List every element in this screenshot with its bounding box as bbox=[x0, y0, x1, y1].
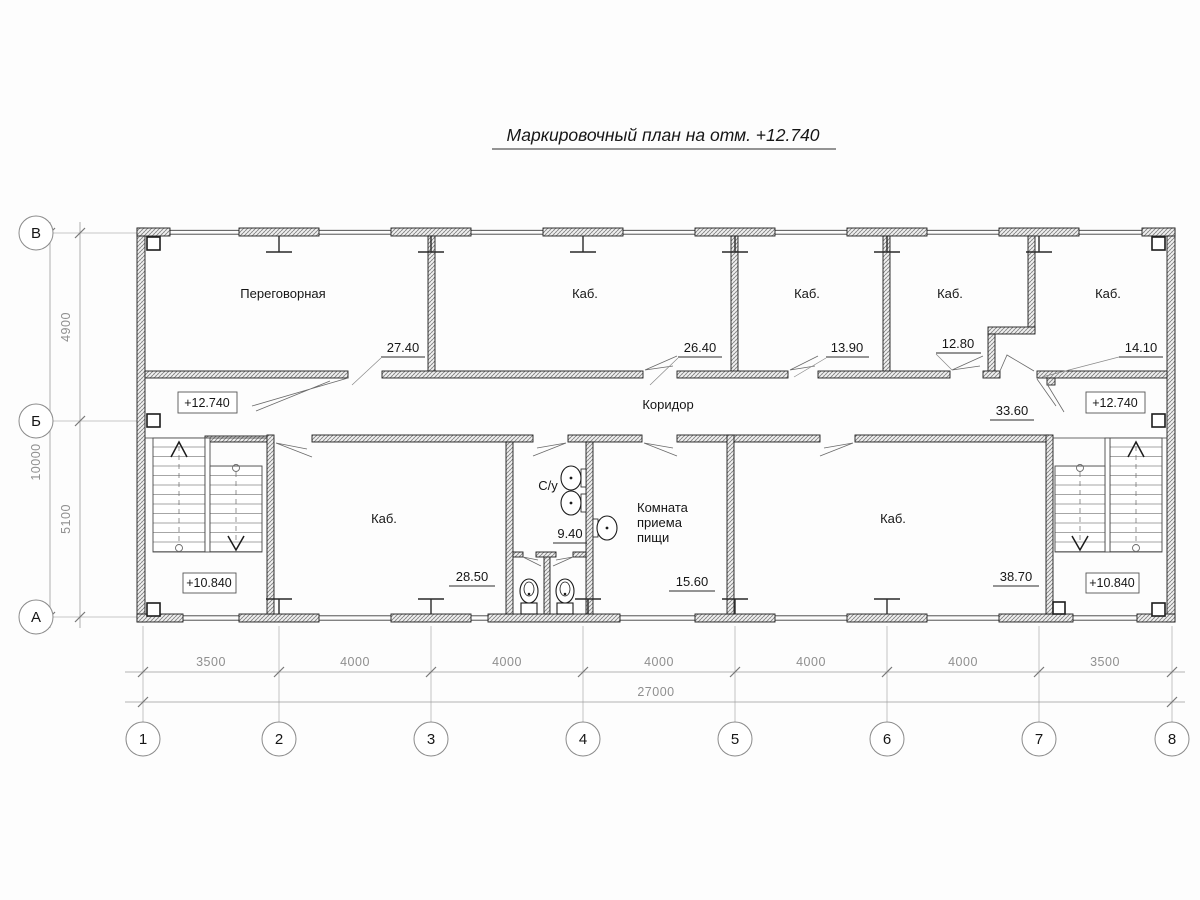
dim-left-lower: 5100 bbox=[59, 504, 73, 534]
sink-icon bbox=[593, 516, 617, 540]
plan-title: Маркировочный план на отм. +12.740 bbox=[506, 125, 819, 145]
room-area-kab-26: 26.40 bbox=[684, 340, 717, 355]
dim-segment-4: 4000 bbox=[796, 655, 826, 669]
dim-segment-2: 4000 bbox=[492, 655, 522, 669]
room-name-kab-12: Каб. bbox=[937, 286, 963, 301]
room-area-kab-12: 12.80 bbox=[942, 336, 975, 351]
axis-col-3: 3 bbox=[427, 731, 435, 748]
room-name-kab-26: Каб. bbox=[572, 286, 598, 301]
room-name-komnata-2: приема bbox=[637, 515, 683, 530]
wall-axis3 bbox=[428, 236, 435, 372]
sink-icon bbox=[561, 491, 586, 515]
wall-axis5 bbox=[731, 236, 738, 372]
room-area-su: 9.40 bbox=[557, 526, 582, 541]
dim-left-upper: 4900 bbox=[59, 312, 73, 342]
dim-total-bottom: 27000 bbox=[637, 685, 674, 699]
axis-col-7: 7 bbox=[1035, 731, 1043, 748]
axis-col-4: 4 bbox=[579, 731, 587, 748]
axis-row-b: Б bbox=[31, 413, 41, 430]
dim-left-total: 10000 bbox=[29, 443, 43, 480]
column-square-icon bbox=[1053, 602, 1065, 614]
room-name-su: С/у bbox=[538, 478, 558, 493]
room-name-kab-14: Каб. bbox=[1095, 286, 1121, 301]
room-area-komnata: 15.60 bbox=[676, 574, 709, 589]
wall-axis6 bbox=[883, 236, 890, 372]
su-wall-right bbox=[586, 442, 593, 614]
dim-segment-3: 4000 bbox=[644, 655, 674, 669]
room-area-peregovornaya: 27.40 bbox=[387, 340, 420, 355]
dim-segment-0: 3500 bbox=[196, 655, 226, 669]
column-square-icon bbox=[1152, 237, 1165, 250]
column-square-icon bbox=[1152, 414, 1165, 427]
level-mark-lower-right: +10.840 bbox=[1089, 576, 1135, 590]
room-name-koridor: Коридор bbox=[642, 397, 693, 412]
room-name-komnata-3: пищи bbox=[637, 530, 669, 545]
room-area-kab-38: 38.70 bbox=[1000, 569, 1033, 584]
exterior-wall-right bbox=[1167, 228, 1175, 622]
corridor-lower-wall bbox=[205, 435, 1048, 442]
axis-col-6: 6 bbox=[883, 731, 891, 748]
room-name-kab-28: Каб. bbox=[371, 511, 397, 526]
stair2-wall bbox=[1046, 435, 1053, 614]
komnata-wall-right bbox=[727, 435, 734, 614]
level-mark-lower-left: +10.840 bbox=[186, 576, 232, 590]
level-mark-upper-right: +12.740 bbox=[1092, 396, 1138, 410]
room-name-kab-38: Каб. bbox=[880, 511, 906, 526]
sink-icon bbox=[561, 466, 586, 490]
stair1-wall bbox=[267, 435, 274, 614]
axis-col-8: 8 bbox=[1168, 731, 1176, 748]
drawing-sheet: Маркировочный план на отм. +12.740 3500 … bbox=[0, 0, 1200, 900]
level-mark-upper-left: +12.740 bbox=[184, 396, 230, 410]
room-name-komnata-1: Комната bbox=[637, 500, 689, 515]
axis-col-5: 5 bbox=[731, 731, 739, 748]
axis-row-a: А bbox=[31, 609, 41, 626]
room-name-peregovornaya: Переговорная bbox=[240, 286, 325, 301]
dim-segment-5: 4000 bbox=[948, 655, 978, 669]
axis-col-2: 2 bbox=[275, 731, 283, 748]
room-area-kab-14: 14.10 bbox=[1125, 340, 1158, 355]
column-square-icon bbox=[147, 237, 160, 250]
room-area-kab-13: 13.90 bbox=[831, 340, 864, 355]
toilet-icon bbox=[556, 579, 574, 614]
axis-row-v: В bbox=[31, 225, 41, 242]
column-square-icon bbox=[1152, 603, 1165, 616]
dim-segment-1: 4000 bbox=[340, 655, 370, 669]
toilet-icon bbox=[520, 579, 538, 614]
room-area-koridor: 33.60 bbox=[996, 403, 1029, 418]
floor-plan: Маркировочный план на отм. +12.740 3500 … bbox=[0, 0, 1200, 900]
su-wall-left bbox=[506, 442, 513, 614]
room-name-kab-13: Каб. bbox=[794, 286, 820, 301]
column-square-icon bbox=[147, 603, 160, 616]
dim-segment-6: 3500 bbox=[1090, 655, 1120, 669]
column-square-icon bbox=[147, 414, 160, 427]
room-area-kab-28: 28.50 bbox=[456, 569, 489, 584]
exterior-wall-left bbox=[137, 228, 145, 622]
axis-col-1: 1 bbox=[139, 731, 147, 748]
